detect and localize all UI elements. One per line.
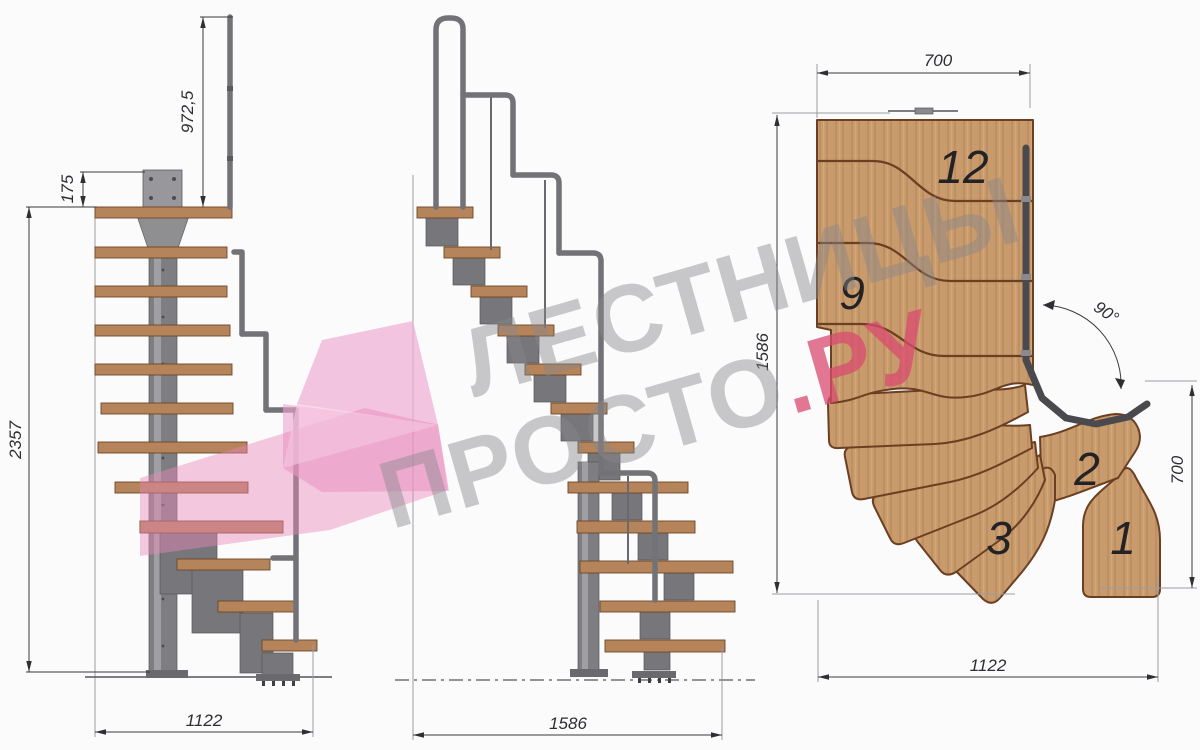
dim-label-175: 175 bbox=[58, 174, 77, 203]
dim-label-1586-side: 1586 bbox=[549, 714, 587, 733]
dimension-side-length: 1586 bbox=[413, 648, 722, 740]
watermark-arrow-facet bbox=[283, 404, 449, 492]
step-label-9: 9 bbox=[839, 267, 865, 319]
dim-label-2357: 2357 bbox=[6, 421, 25, 460]
dimension-turn-angle: 90° bbox=[1043, 297, 1125, 389]
side-elevation-view: 1586 bbox=[395, 18, 755, 740]
dimension-total-height: 2357 bbox=[6, 207, 150, 672]
watermark-arrow-facet bbox=[297, 321, 438, 425]
staircase-technical-drawing: 972,5 175 2357 bbox=[0, 0, 1200, 750]
wall-mount-plate bbox=[143, 170, 182, 207]
plan-handrail bbox=[1021, 148, 1147, 424]
plan-view: 12 9 3 2 1 700 1586 bbox=[753, 51, 1197, 682]
dimension-top-mount: 175 bbox=[58, 172, 145, 207]
step-label-12: 12 bbox=[937, 141, 988, 193]
dim-label-972-5: 972,5 bbox=[178, 90, 197, 133]
plan-landing bbox=[817, 120, 1033, 403]
plan-wall-bracket bbox=[888, 108, 958, 114]
step-label-1: 1 bbox=[1110, 512, 1136, 564]
front-handrail bbox=[227, 17, 296, 640]
dim-label-1586-plan: 1586 bbox=[753, 333, 772, 371]
drawing-sheet: 972,5 175 2357 bbox=[0, 0, 1200, 750]
dim-label-700-right: 700 bbox=[1168, 455, 1187, 484]
step-label-3: 3 bbox=[986, 512, 1012, 564]
side-support-modules bbox=[426, 218, 694, 683]
dim-label-1122-plan: 1122 bbox=[970, 656, 1007, 675]
step-label-2: 2 bbox=[1073, 443, 1100, 495]
dim-label-700-top: 700 bbox=[924, 51, 953, 70]
dim-label-1122-front: 1122 bbox=[186, 711, 223, 730]
dim-label-90deg: 90° bbox=[1090, 297, 1122, 327]
front-elevation-view: 972,5 175 2357 bbox=[6, 17, 332, 737]
watermark-arrow-facet bbox=[283, 404, 438, 468]
dimension-handrail-height: 972,5 bbox=[178, 17, 233, 207]
